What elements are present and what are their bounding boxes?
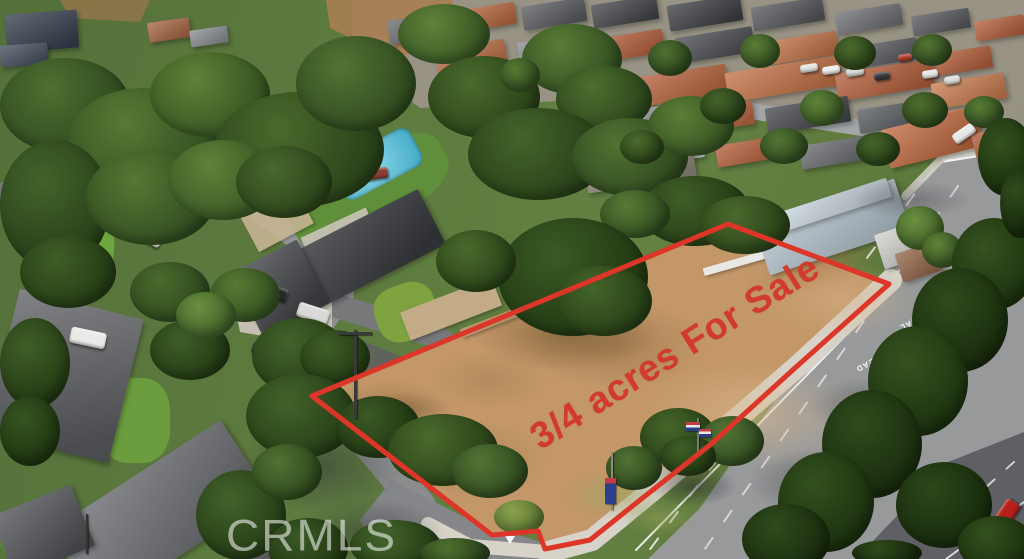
aerial-photo: SIGNAL AHEAD 3/4 acres For Sale CRMLS <box>0 0 1024 559</box>
mls-watermark: CRMLS <box>226 509 397 559</box>
property-boundary <box>0 0 1024 559</box>
